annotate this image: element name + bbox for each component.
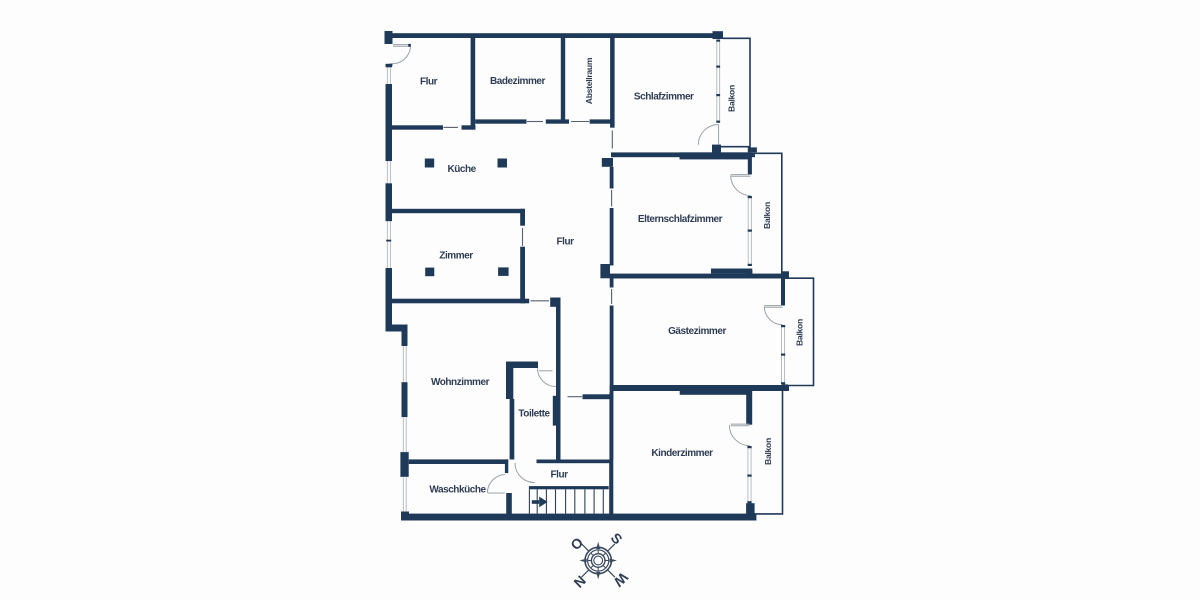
svg-text:Küche: Küche xyxy=(447,164,476,175)
svg-text:Wohnzimmer: Wohnzimmer xyxy=(431,377,490,388)
svg-text:Waschküche: Waschküche xyxy=(429,485,486,496)
svg-text:Toilette: Toilette xyxy=(518,409,550,420)
svg-text:Kinderzimmer: Kinderzimmer xyxy=(651,448,713,459)
svg-text:Flur: Flur xyxy=(556,237,574,248)
svg-text:Flur: Flur xyxy=(550,470,568,481)
svg-text:Gästezimmer: Gästezimmer xyxy=(668,326,726,337)
svg-text:Schlafzimmer: Schlafzimmer xyxy=(634,92,694,103)
svg-text:Balkon: Balkon xyxy=(727,85,737,112)
svg-text:Balkon: Balkon xyxy=(762,202,772,229)
svg-text:Balkon: Balkon xyxy=(763,438,773,465)
svg-text:Zimmer: Zimmer xyxy=(439,251,473,262)
svg-text:Balkon: Balkon xyxy=(795,319,805,346)
svg-text:Abstellraum: Abstellraum xyxy=(584,57,594,104)
svg-text:Badezimmer: Badezimmer xyxy=(490,76,546,87)
svg-text:Flur: Flur xyxy=(420,77,438,88)
svg-text:Elternschlafzimmer: Elternschlafzimmer xyxy=(638,214,723,225)
